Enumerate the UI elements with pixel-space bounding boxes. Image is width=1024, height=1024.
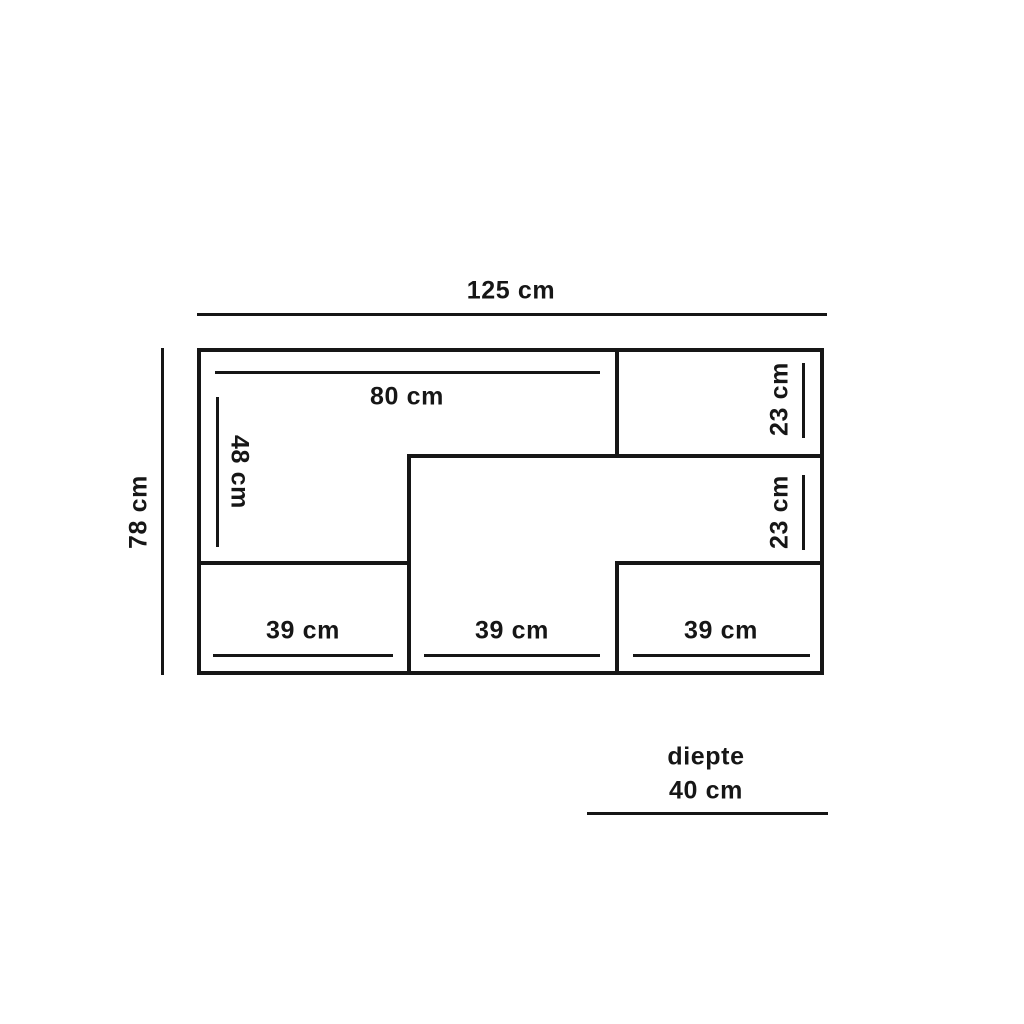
overall-height-label: 78 cm (127, 475, 152, 549)
bottom-right-section-width-label: 39 cm (684, 619, 758, 644)
depth-value-label: 40 cm (669, 779, 743, 804)
divider-vertical-top-right (615, 348, 619, 458)
dimension-line-overall-height (161, 348, 164, 675)
dimension-line-top-shelf-width (215, 371, 600, 374)
right-middle-section-height-label: 23 cm (768, 475, 793, 549)
bottom-middle-section-width-label: 39 cm (475, 619, 549, 644)
overall-width-label: 125 cm (467, 279, 555, 304)
dimension-line-right-top-height (802, 363, 805, 438)
dimension-line-overall-width (197, 313, 827, 316)
divider-horizontal-bottom-right (615, 561, 824, 565)
divider-horizontal-bottom-left (197, 561, 411, 565)
dimension-line-left-section-height (216, 397, 219, 547)
depth-label: diepte (667, 745, 744, 770)
dimension-line-bottom-left-width (213, 654, 393, 657)
dimension-line-bottom-right-width (633, 654, 810, 657)
dimension-line-right-middle-height (802, 475, 805, 550)
bottom-left-section-width-label: 39 cm (266, 619, 340, 644)
left-section-height-label: 48 cm (227, 435, 252, 509)
top-shelf-width-label: 80 cm (370, 385, 444, 410)
cabinet-dimension-diagram: 125 cm 78 cm 80 cm 48 cm 23 cm 23 cm 39 … (0, 0, 1024, 1024)
divider-horizontal-middle (407, 454, 824, 458)
dimension-line-depth (587, 812, 828, 815)
dimension-line-bottom-middle-width (424, 654, 600, 657)
right-top-section-height-label: 23 cm (768, 362, 793, 436)
divider-vertical-bottom-right (615, 561, 619, 675)
